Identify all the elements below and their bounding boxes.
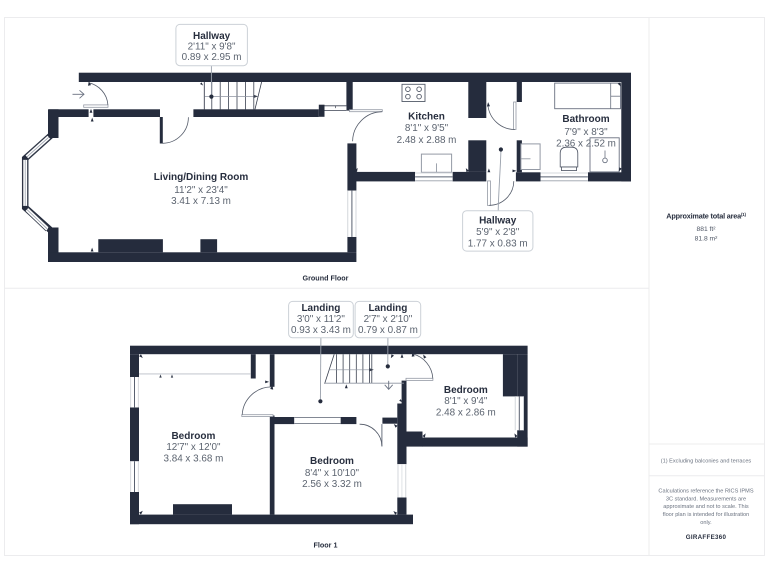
svg-text:Hallway: Hallway	[479, 215, 517, 226]
svg-text:Landing: Landing	[368, 303, 407, 314]
svg-text:12'7" x 12'0": 12'7" x 12'0"	[166, 442, 221, 453]
svg-text:Hallway: Hallway	[193, 31, 231, 42]
svg-text:5'9" x 2'8": 5'9" x 2'8"	[476, 227, 520, 238]
svg-text:3.84 x 3.68 m: 3.84 x 3.68 m	[163, 454, 223, 465]
svg-text:2'11" x 9'8": 2'11" x 9'8"	[188, 41, 236, 52]
svg-text:8'1" x 9'5": 8'1" x 9'5"	[405, 123, 449, 134]
svg-text:2.48 x 2.88 m: 2.48 x 2.88 m	[397, 135, 457, 146]
svg-text:Kitchen: Kitchen	[408, 111, 445, 122]
svg-text:881 ft²: 881 ft²	[697, 226, 717, 233]
svg-text:2.36 x 2.52 m: 2.36 x 2.52 m	[556, 139, 616, 150]
svg-text:Bedroom: Bedroom	[171, 431, 215, 442]
svg-text:3'0" x 11'2": 3'0" x 11'2"	[297, 314, 345, 325]
svg-text:11'2" x 23'4": 11'2" x 23'4"	[174, 185, 228, 196]
svg-text:GIRAFFE360: GIRAFFE360	[686, 534, 727, 541]
svg-text:1.77 x 0.83 m: 1.77 x 0.83 m	[468, 238, 528, 249]
svg-text:3.41 x 7.13 m: 3.41 x 7.13 m	[171, 196, 231, 207]
svg-text:0.79 x 0.87 m: 0.79 x 0.87 m	[358, 325, 418, 336]
svg-text:8'1" x 9'4": 8'1" x 9'4"	[444, 396, 488, 407]
svg-text:approximate and not to scale.: approximate and not to scale. This	[663, 504, 749, 510]
svg-text:Bedroom: Bedroom	[310, 456, 354, 467]
svg-text:Ground Floor: Ground Floor	[303, 273, 349, 282]
svg-text:2'7" x 2'10": 2'7" x 2'10"	[364, 314, 413, 325]
svg-text:(1) Excluding balconies and te: (1) Excluding balconies and terraces	[661, 458, 752, 464]
svg-text:81.8 m²: 81.8 m²	[695, 235, 718, 242]
svg-text:floor plan is intended for ill: floor plan is intended for illustration	[663, 512, 749, 518]
svg-text:7'9" x 8'3": 7'9" x 8'3"	[564, 127, 608, 138]
svg-text:Floor 1: Floor 1	[314, 541, 338, 550]
svg-text:Bedroom: Bedroom	[444, 385, 488, 396]
svg-text:2.48 x 2.86 m: 2.48 x 2.86 m	[436, 407, 496, 418]
svg-text:2.56 x 3.32 m: 2.56 x 3.32 m	[302, 479, 362, 490]
svg-text:Living/Dining Room: Living/Dining Room	[154, 172, 249, 183]
svg-text:Landing: Landing	[301, 303, 340, 314]
svg-text:0.93 x 3.43 m: 0.93 x 3.43 m	[291, 325, 351, 336]
svg-text:8'4" x 10'10": 8'4" x 10'10"	[305, 468, 360, 479]
svg-text:Bathroom: Bathroom	[562, 114, 609, 125]
svg-text:only.: only.	[700, 520, 712, 526]
svg-text:0.89 x 2.95 m: 0.89 x 2.95 m	[182, 52, 242, 63]
svg-text:3C standard. Measurements are: 3C standard. Measurements are	[666, 496, 746, 502]
svg-text:Approximate total area(1): Approximate total area(1)	[666, 211, 746, 220]
svg-text:Calculations reference the RIC: Calculations reference the RICS IPMS	[658, 489, 753, 495]
